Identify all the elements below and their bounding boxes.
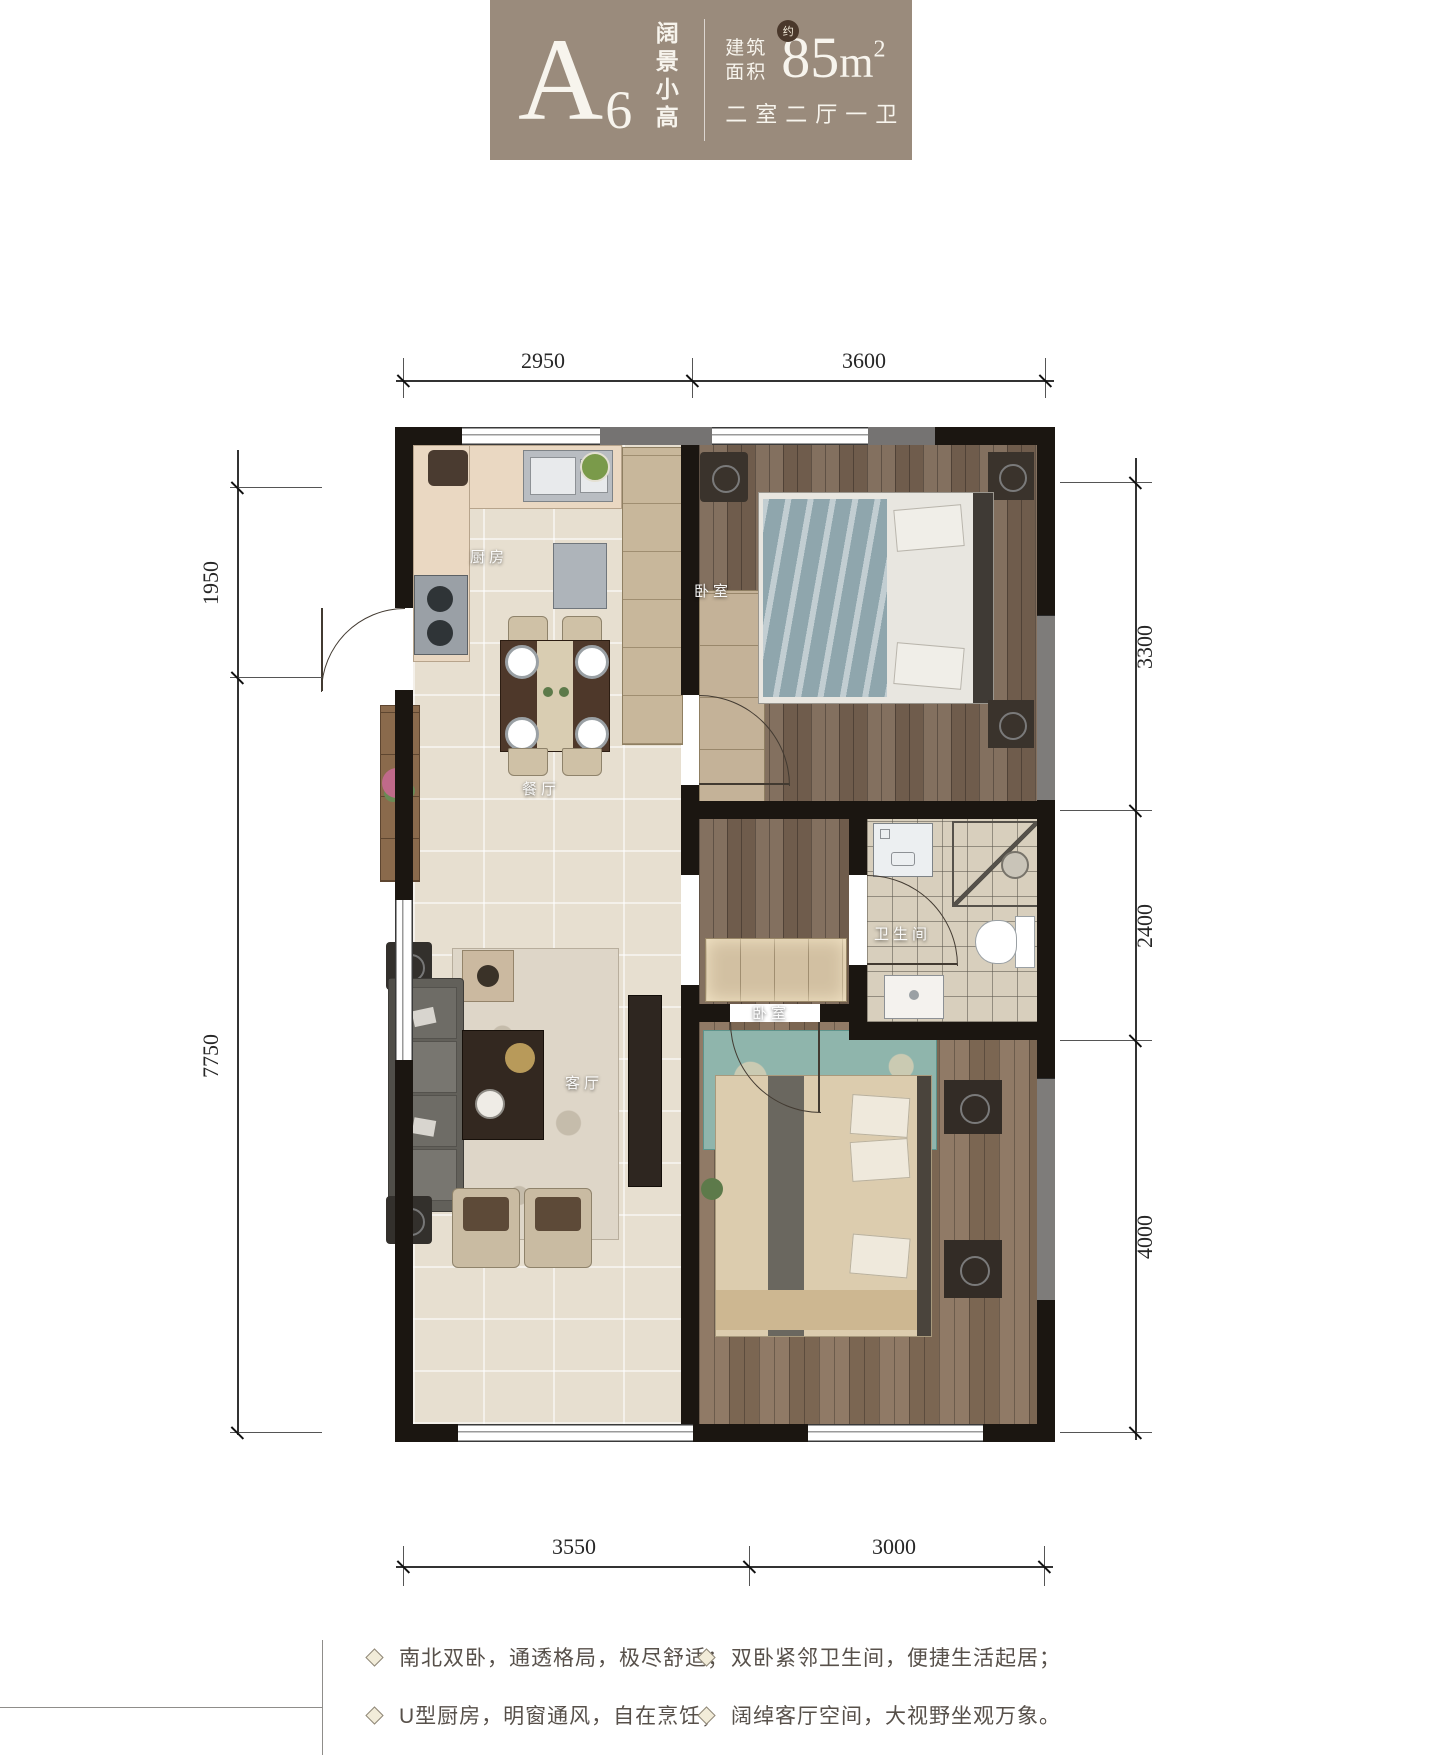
coffee-table [462,1030,544,1140]
bedroom-south-window [808,1424,983,1442]
bed-north [758,492,994,704]
dim-ext [692,358,693,398]
toilet [975,912,1035,970]
wall [1037,427,1055,615]
wall [600,427,712,445]
feature-text: U型厨房，明窗通风，自在烹饪； [399,1700,723,1730]
dim-ext [230,1432,322,1433]
nightstand [944,1240,1002,1298]
bed-throw [716,1290,917,1330]
wall [699,801,1037,819]
dim-line-left [237,450,239,1435]
wall [1037,800,1055,1078]
dining-chair [562,748,602,776]
green-bowl [580,452,610,482]
pillow [849,1234,910,1279]
pillow [850,1138,911,1182]
dim-ext [1060,1432,1152,1433]
dim-ext [230,677,322,678]
dining-window [395,900,413,1060]
dim-ext [1045,358,1046,398]
feature-item: 南北双卧，通透格局，极尽舒适； [368,1642,729,1672]
diamond-bullet-icon [697,1706,715,1724]
bedroom-south-side-window [1037,1078,1055,1302]
sofa-cushion [409,1149,457,1201]
dim-left-2: 7750 [198,1026,224,1086]
sofa-cushion [409,1041,457,1093]
dim-bottom-1: 3550 [552,1534,596,1560]
dim-bottom-2: 3000 [872,1534,916,1560]
floorplan-page: A 6 阔景小高 约 建筑 面积 85m2 二室二厅一卫 [0,0,1440,1755]
bed-south [715,1075,932,1337]
room-count-text: 二室二厅一卫 [725,97,905,129]
nightstand [988,452,1034,500]
armchair [452,1188,520,1268]
feature-text: 阔绰客厅空间，大视野坐观万象。 [731,1700,1061,1730]
wall [395,1060,413,1442]
plate [505,645,539,679]
feature-item: U型厨房，明窗通风，自在烹饪； [368,1700,723,1730]
bedroom-south-door-leaf [818,1022,820,1112]
dim-line-bottom [396,1566,1053,1568]
dim-right-3: 4000 [1132,1207,1158,1267]
wall [681,445,699,695]
range-hood [428,450,468,486]
wall [849,965,867,1022]
dining-table [500,640,610,752]
unit-header: A 6 阔景小高 约 建筑 面积 85m2 二室二厅一卫 [490,0,912,160]
header-area-block: 约 建筑 面积 85m2 二室二厅一卫 [725,32,905,129]
shower [952,821,1039,907]
divider-horizontal [0,1707,322,1708]
unit-tagline: 阔景小高 [648,21,682,139]
washing-machine [873,823,933,877]
bedroom-north-window [712,427,868,445]
table-plant [559,687,569,697]
wall [395,690,413,900]
living-window [458,1424,693,1442]
dim-right-1: 3300 [1132,617,1158,677]
dim-ext [1060,482,1152,483]
plate [575,717,609,751]
bathroom-door-leaf [867,963,957,965]
area-value: 85m2 [781,32,885,85]
steel-cabinet [553,543,607,609]
pillow [850,1094,911,1138]
header-divider [704,19,705,141]
wall [699,1004,730,1022]
diamond-bullet-icon [697,1648,715,1666]
dim-ext [1060,810,1152,811]
tea-set [475,1089,505,1119]
shower-head [1001,851,1029,879]
blanket [763,499,887,697]
pillow [893,642,964,690]
wall [1037,1300,1055,1442]
headboard [973,493,993,703]
wall [681,985,699,1424]
wall [681,785,699,875]
tv-console [628,995,662,1187]
wall [849,819,867,875]
table-plant [543,687,553,697]
pillow [893,504,964,552]
feature-text: 双卧紧邻卫生间，便捷生活起居； [731,1642,1061,1672]
approx-badge: 约 [777,20,799,42]
entry-door-leaf [321,608,323,691]
dim-right-2: 2400 [1132,896,1158,956]
dim-line-top [396,380,1054,382]
dim-top-2: 3600 [842,348,886,374]
nightstand [988,700,1034,748]
area-label: 建筑 面积 [725,37,767,85]
nightstand [944,1080,1002,1134]
wall [693,1424,808,1442]
room-label-bedroom-north: 卧室 [694,580,732,601]
wall [849,1022,1037,1040]
room-label-living: 客厅 [565,1072,603,1093]
diamond-bullet-icon [365,1648,383,1666]
dim-top-1: 2950 [521,348,565,374]
unit-code: A 6 [518,21,632,139]
entry-door-arc [321,608,405,692]
plate [505,717,539,751]
tray [505,1043,535,1073]
plant [701,1178,723,1200]
wall [868,427,935,445]
wardrobe [705,938,847,1002]
dining-chair [508,748,548,776]
wall [820,1004,849,1022]
room-label-kitchen: 厨房 [470,546,508,567]
room-label-bedroom-south: 卧室 [752,1002,790,1023]
dim-left-1: 1950 [198,553,224,613]
bedroom-north-side-window [1037,615,1055,802]
dim-ext [1060,1040,1152,1041]
room-label-bathroom: 卫生间 [874,923,931,944]
feature-item: 阔绰客厅空间，大视野坐观万象。 [700,1700,1061,1730]
dim-ext [230,487,322,488]
speaker [700,452,748,502]
room-label-dining: 餐厅 [522,778,560,799]
dim-ext [403,358,404,398]
armchair [524,1188,592,1268]
bedroom-north-door-leaf [699,783,789,785]
feature-item: 双卧紧邻卫生间，便捷生活起居； [700,1642,1061,1672]
bathroom-sink [884,975,944,1019]
table-runner [537,641,573,751]
unit-number: 6 [605,83,632,137]
plate [575,645,609,679]
diamond-bullet-icon [365,1706,383,1724]
stove [414,575,468,655]
feature-text: 南北双卧，通透格局，极尽舒适； [399,1642,729,1672]
divider-vertical [322,1640,323,1755]
hall-cabinet [622,447,683,745]
wall [395,427,413,608]
side-table [462,950,514,1002]
unit-letter: A [518,21,603,139]
headboard [917,1076,931,1336]
kitchen-window [462,427,600,445]
